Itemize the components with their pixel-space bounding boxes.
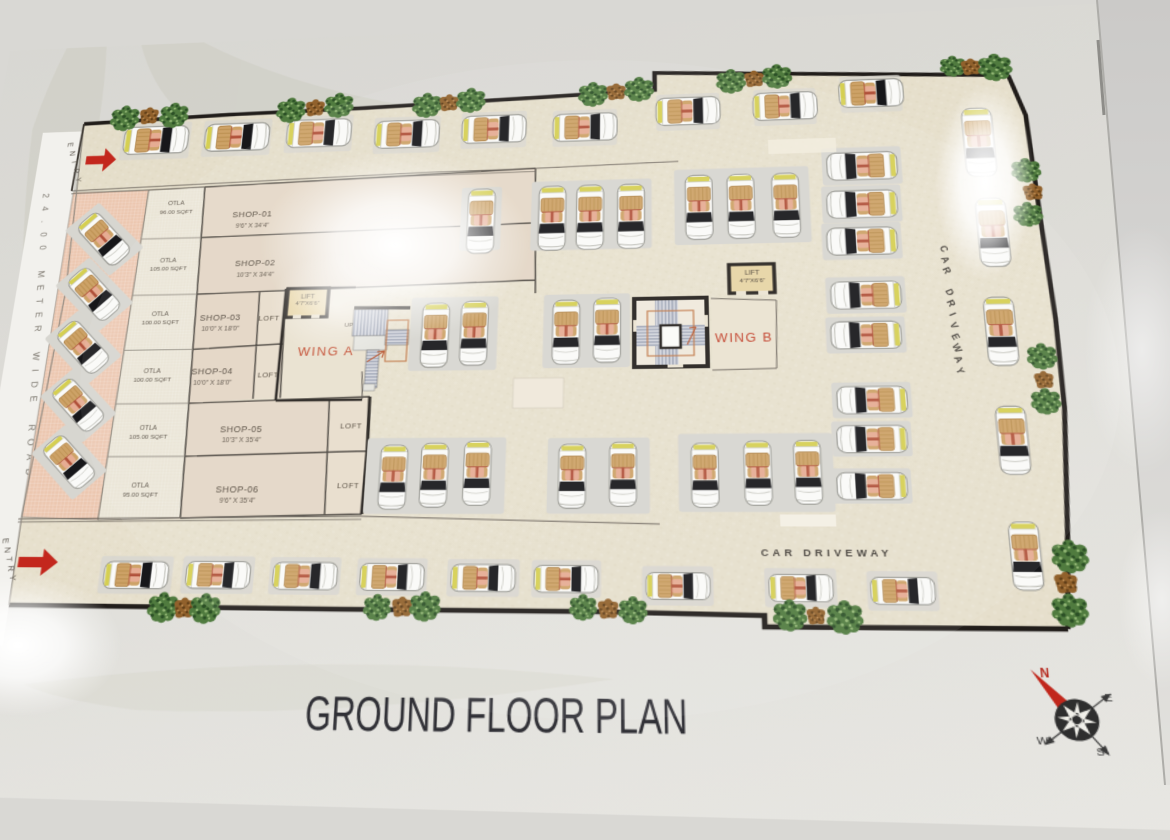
svg-text:105.00 SQFT: 105.00 SQFT: [129, 434, 169, 441]
svg-text:9’6” X 35’4”: 9’6” X 35’4”: [219, 498, 256, 505]
svg-text:UP: UP: [344, 322, 354, 329]
svg-text:9’6” X 34’4”: 9’6” X 34’4”: [235, 223, 269, 230]
svg-text:W: W: [1036, 734, 1050, 748]
svg-text:LOFT: LOFT: [337, 483, 360, 490]
svg-text:100.00 SQFT: 100.00 SQFT: [133, 377, 173, 384]
svg-text:WING A: WING A: [297, 345, 354, 359]
svg-text:GROUND FLOOR PLAN: GROUND FLOOR PLAN: [303, 688, 688, 746]
svg-text:10’3” X 35’4”: 10’3” X 35’4”: [221, 438, 261, 445]
svg-text:D: D: [29, 381, 40, 389]
svg-text:E: E: [35, 284, 46, 291]
svg-text:OTLA: OTLA: [131, 483, 150, 490]
svg-text:105.00 SQFT: 105.00 SQFT: [149, 266, 187, 273]
svg-text:OTLA: OTLA: [139, 425, 158, 432]
svg-text:OTLA: OTLA: [168, 201, 185, 208]
svg-text:LOFT: LOFT: [257, 372, 279, 379]
svg-text:10’3” X 34’4”: 10’3” X 34’4”: [236, 272, 274, 279]
svg-text:SHOP-05: SHOP-05: [220, 424, 263, 435]
svg-text:SHOP-02: SHOP-02: [235, 258, 276, 269]
svg-text:4’7”X6’6”: 4’7”X6’6”: [739, 277, 765, 284]
svg-text:E: E: [1104, 692, 1114, 705]
svg-text:R: R: [32, 325, 43, 332]
svg-text:95.00 SQFT: 95.00 SQFT: [122, 492, 159, 499]
svg-text:N: N: [1039, 667, 1050, 681]
svg-text:LOFT: LOFT: [340, 423, 362, 430]
svg-text:96.00 SQFT: 96.00 SQFT: [159, 209, 194, 216]
svg-text:4’7”X6’6”: 4’7”X6’6”: [295, 301, 320, 308]
svg-text:SHOP-03: SHOP-03: [199, 312, 241, 323]
svg-text:SHOP-01: SHOP-01: [232, 209, 273, 219]
svg-text:SHOP-06: SHOP-06: [215, 483, 259, 494]
svg-text:W: W: [30, 352, 41, 362]
svg-text:10’0” X 18’0”: 10’0” X 18’0”: [201, 326, 240, 333]
svg-text:LIFT: LIFT: [301, 294, 316, 301]
svg-text:T: T: [4, 556, 13, 562]
svg-text:LOFT: LOFT: [258, 315, 279, 322]
svg-text:OTLA: OTLA: [151, 311, 169, 318]
svg-text:LIFT: LIFT: [745, 270, 761, 277]
svg-text:OTLA: OTLA: [143, 368, 161, 375]
svg-text:E: E: [33, 311, 44, 318]
svg-text:T: T: [34, 298, 45, 304]
svg-text:100.00 SQFT: 100.00 SQFT: [141, 320, 180, 327]
svg-text:WING B: WING B: [715, 332, 773, 346]
svg-text:OTLA: OTLA: [159, 258, 177, 265]
svg-text:M: M: [36, 270, 47, 278]
svg-text:N: N: [2, 547, 11, 554]
svg-text:CAR DRIVEWAY: CAR DRIVEWAY: [761, 547, 894, 559]
svg-text:S: S: [1096, 746, 1106, 760]
svg-text:R: R: [5, 565, 14, 572]
svg-text:E: E: [28, 395, 39, 402]
svg-text:10’0” X 18’0”: 10’0” X 18’0”: [193, 380, 232, 387]
svg-text:SHOP-04: SHOP-04: [191, 366, 233, 377]
